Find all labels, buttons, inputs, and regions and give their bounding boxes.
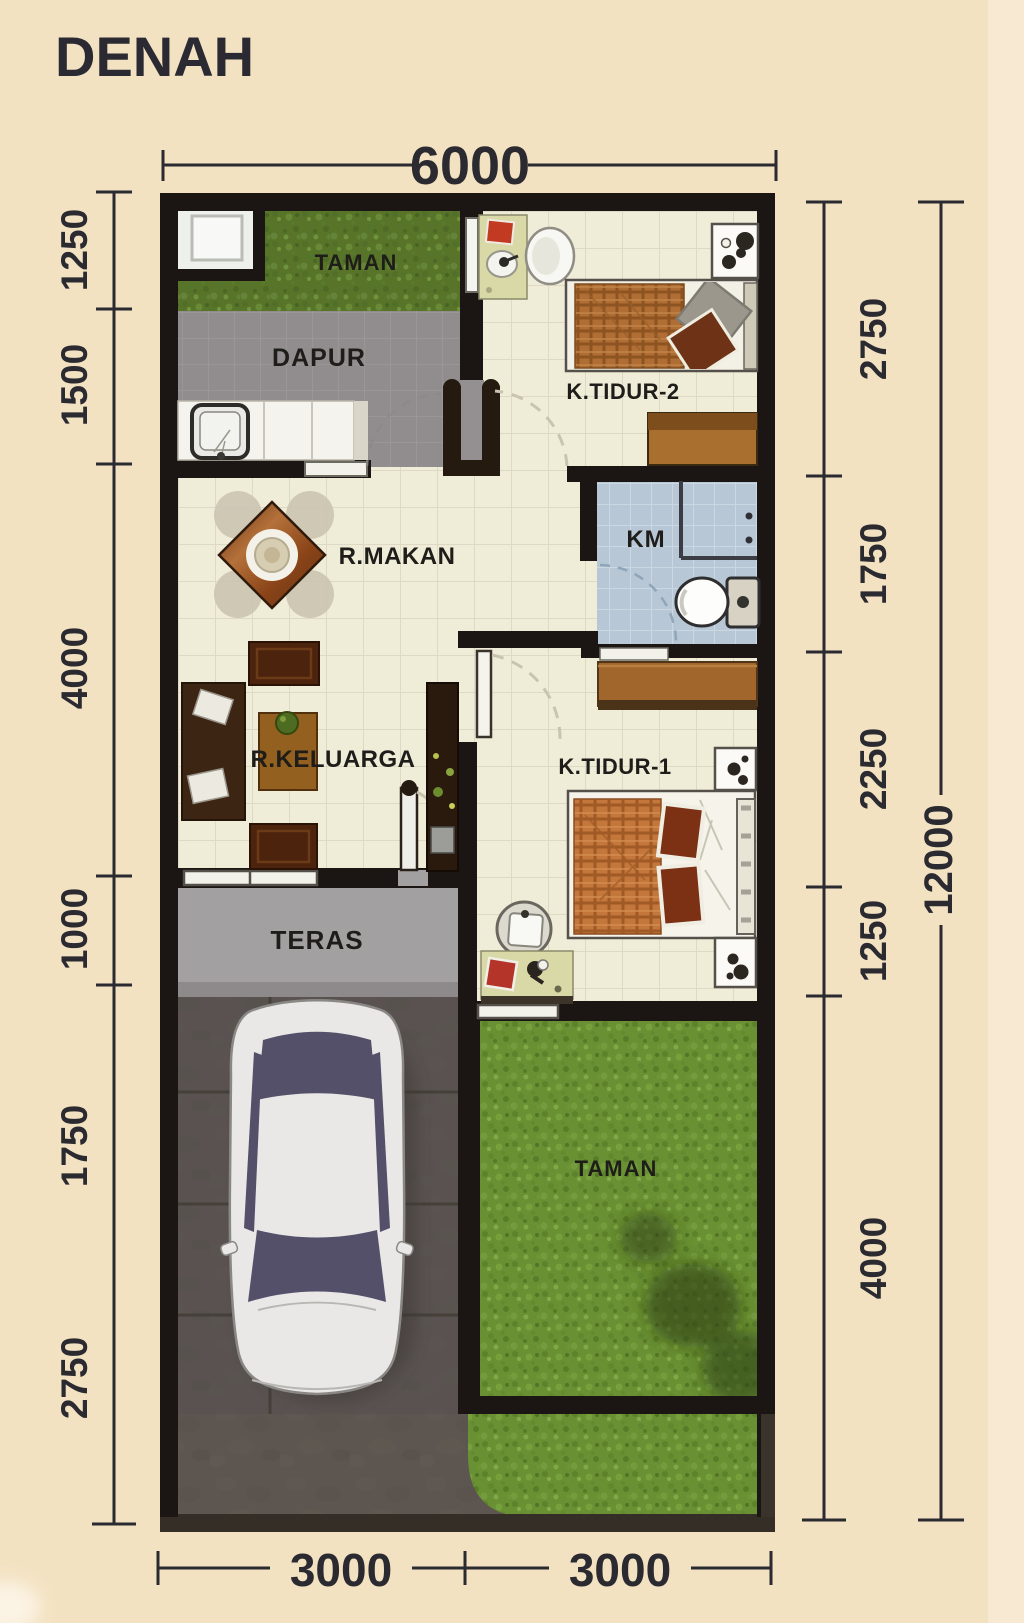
svg-text:3000: 3000: [290, 1544, 392, 1596]
svg-text:6000: 6000: [410, 136, 530, 196]
svg-text:R.MAKAN: R.MAKAN: [339, 543, 456, 570]
svg-text:2750: 2750: [853, 298, 894, 380]
svg-text:3000: 3000: [569, 1544, 671, 1596]
svg-text:1750: 1750: [54, 1105, 95, 1187]
svg-text:TERAS: TERAS: [270, 925, 363, 955]
svg-text:R.KELUARGA: R.KELUARGA: [251, 746, 416, 773]
svg-text:2750: 2750: [54, 1337, 95, 1419]
svg-text:TAMAN: TAMAN: [315, 250, 398, 275]
svg-text:K.TIDUR-1: K.TIDUR-1: [558, 754, 671, 779]
svg-text:DENAH: DENAH: [55, 25, 254, 88]
svg-text:2250: 2250: [853, 728, 894, 810]
svg-text:1750: 1750: [853, 523, 894, 605]
svg-text:TAMAN: TAMAN: [575, 1156, 658, 1181]
svg-text:KM: KM: [626, 526, 665, 553]
svg-text:1000: 1000: [54, 888, 95, 970]
svg-text:K.TIDUR-2: K.TIDUR-2: [566, 379, 679, 404]
svg-text:12000: 12000: [917, 804, 961, 915]
svg-text:4000: 4000: [54, 627, 95, 709]
svg-text:4000: 4000: [853, 1217, 894, 1299]
svg-text:1500: 1500: [54, 344, 95, 426]
svg-text:1250: 1250: [54, 209, 95, 291]
svg-text:1250: 1250: [853, 900, 894, 982]
svg-text:DAPUR: DAPUR: [272, 344, 366, 372]
